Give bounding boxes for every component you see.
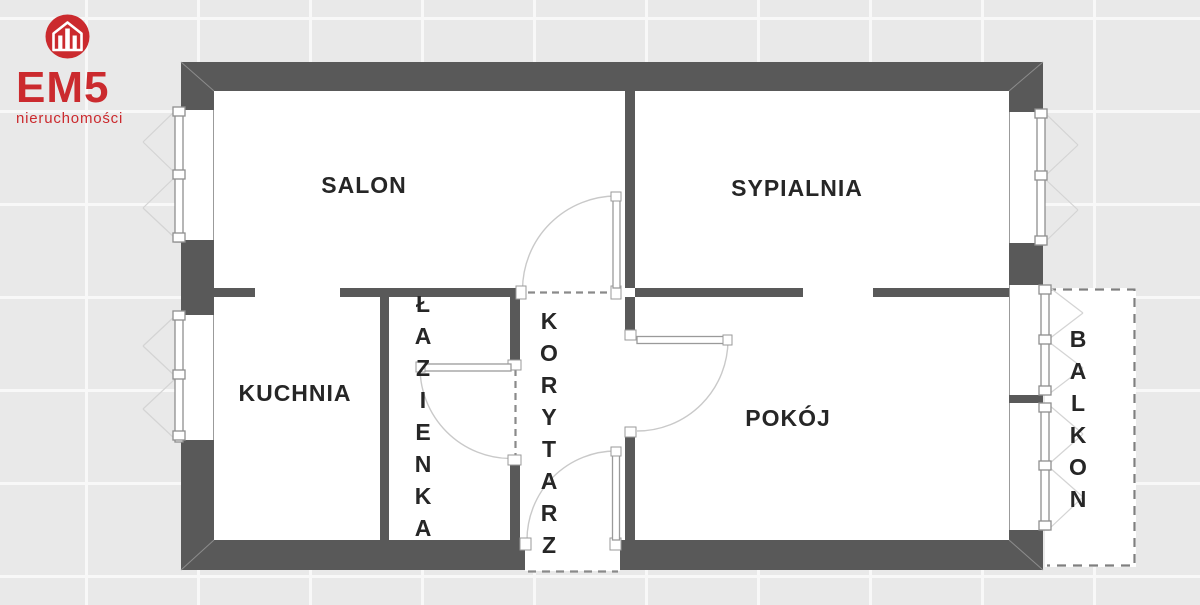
agency-logo: EM5 nieruchomości	[0, 0, 140, 135]
room-label-pokoj: POKÓJ	[688, 405, 888, 431]
room-label-lazienka: ŁAZIENKA	[411, 291, 434, 547]
floorplan-svg	[0, 0, 1200, 605]
balcony-door-window	[1039, 285, 1051, 395]
room-label-kuchnia: KUCHNIA	[195, 380, 395, 406]
room-label-korytarz: KORYTARZ	[537, 308, 560, 564]
house-icon	[45, 14, 90, 59]
salon-window	[173, 107, 185, 242]
logo-title: EM5	[16, 66, 109, 110]
kitchen-window	[173, 311, 185, 442]
room-label-balkon: BALKON	[1066, 326, 1089, 518]
room-label-sypialnia: SYPIALNIA	[697, 175, 897, 201]
room-label-salon: SALON	[264, 172, 464, 198]
floorplan-image: SALON SYPIALNIA KUCHNIA ŁAZIENKA KORYTAR…	[0, 0, 1200, 605]
balcony-window	[1039, 403, 1051, 530]
logo-subtitle: nieruchomości	[16, 111, 123, 126]
bedroom-window	[1035, 109, 1047, 245]
